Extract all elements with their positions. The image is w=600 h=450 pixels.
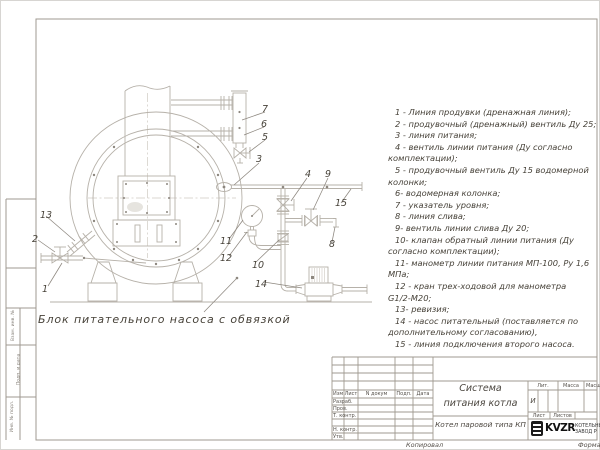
legend-line: 6- водомерная колонка;: [386, 188, 600, 200]
legend-line: 1 - Линия продувки (дренажная линия);: [386, 107, 600, 119]
callout-number: 2: [32, 234, 38, 245]
legend-line: 8 - линия слива;: [386, 211, 600, 223]
massa-label: Масса: [558, 383, 584, 389]
legend-line: 5 - продувочный вентиль Ду 15 водомерной: [386, 165, 600, 177]
callout-number: 9: [325, 169, 331, 180]
legend-line: 13- ревизия;: [386, 304, 600, 316]
water-gauge-column: [171, 91, 250, 163]
row-nkontr: Н. контр.: [333, 427, 357, 433]
col-data: Дата: [413, 391, 433, 397]
legend-line: дополнительному согласованию),: [386, 327, 600, 339]
doc-title-line1: Система: [433, 383, 528, 394]
callout-number: 3: [256, 154, 262, 165]
col-doc: N докум: [358, 391, 395, 397]
drawing-caption: Блок питательного насоса с обвязкой: [38, 313, 308, 326]
callout-number: 12: [220, 253, 232, 264]
margin-label-inv: Инв. № подл.: [10, 396, 15, 437]
legend-list: 1 - Линия продувки (дренажная линия);2 -…: [386, 107, 600, 350]
legend-line: колонки;: [386, 177, 600, 189]
feed-drop-pipe: [277, 189, 294, 291]
callout-number: 10: [252, 260, 264, 271]
legend-line: 9- вентиль линии слива Ду 20;: [386, 223, 600, 235]
row-utv: Утв.: [333, 434, 344, 440]
legend-line: 3 - линия питания;: [386, 130, 600, 142]
callout-number: 5: [262, 132, 268, 143]
col-list: Лист: [344, 391, 358, 397]
plate-bolts: [116, 223, 177, 243]
burner-plate: [113, 220, 180, 246]
drain-branch: [285, 209, 339, 227]
blowdown-line: [41, 231, 146, 263]
legend-line: G1/2-М20;: [386, 293, 600, 305]
row-razrab: Разраб.: [333, 399, 353, 405]
row-tkontr: Т. контр.: [333, 413, 356, 419]
feed-pump: [288, 267, 367, 301]
listov-label: Листов: [550, 413, 575, 419]
callout-number: 11: [220, 236, 232, 247]
legend-line: 2 - продувочный (дренажный) вентиль Ду 2…: [386, 119, 600, 131]
lit-label: Лит.: [528, 383, 558, 389]
feed-line: [217, 182, 363, 192]
masshtab-label: Масштаб: [586, 383, 600, 389]
margin-label-podp: Подп. и дата: [17, 345, 22, 395]
doc-title-line2: питания котла: [433, 398, 528, 409]
manometer: [242, 206, 282, 250]
lit-value: И: [528, 397, 538, 405]
format-label: Формат: [578, 441, 600, 449]
callout-number: 1: [42, 284, 48, 295]
kvzr-logo-text: KVZR: [545, 422, 575, 434]
legend-line: 4 - вентиль линии питания (Ду согласно: [386, 142, 600, 154]
margin-label-vzam: Взам. инв. №: [11, 307, 16, 344]
legend-line: 10- клапан обратный линии питания (Ду: [386, 235, 600, 247]
product-name: Котел паровой типа КП: [433, 420, 528, 429]
kvzr-logo-icon: [531, 421, 543, 436]
callout-number: 6: [261, 119, 267, 130]
flange-bolts: [93, 146, 219, 265]
legend-line: МПа;: [386, 269, 600, 281]
callout-leaders: [38, 112, 351, 312]
callout-number: 7: [262, 104, 268, 115]
drawing-sheet: 1 - Линия продувки (дренажная линия);2 -…: [0, 0, 600, 450]
kvzr-sub-line2: ЗАВОД Р: [575, 430, 597, 435]
legend-line: 7 - указатель уровня;: [386, 200, 600, 212]
callout-number: 15: [335, 198, 347, 209]
col-podp: Подп.: [395, 391, 413, 397]
legend-line: согласно комплектации);: [386, 246, 600, 258]
callout-number: 14: [255, 279, 267, 290]
callout-number: 8: [329, 239, 335, 250]
legend-line: 15 - линия подключения второго насоса.: [386, 339, 600, 351]
kopiroval-label: Копировал: [406, 441, 443, 449]
legend-line: 11- манометр линии питания МП-100, Ру 1,…: [386, 258, 600, 270]
legend-line: 12 - кран трех-ходовой для манометра: [386, 281, 600, 293]
col-izm: Изм: [333, 391, 343, 397]
list-label: Лист: [528, 413, 550, 419]
callout-number: 4: [305, 169, 311, 180]
legend-line: 14 - насос питательный (поставляется по: [386, 316, 600, 328]
callout-number: 13: [40, 210, 52, 221]
legend-line: комплектации);: [386, 153, 600, 165]
row-prov: Пров.: [333, 406, 348, 412]
kvzr-sub-line1: КОТЕЛЬНЫЙ: [575, 424, 600, 429]
